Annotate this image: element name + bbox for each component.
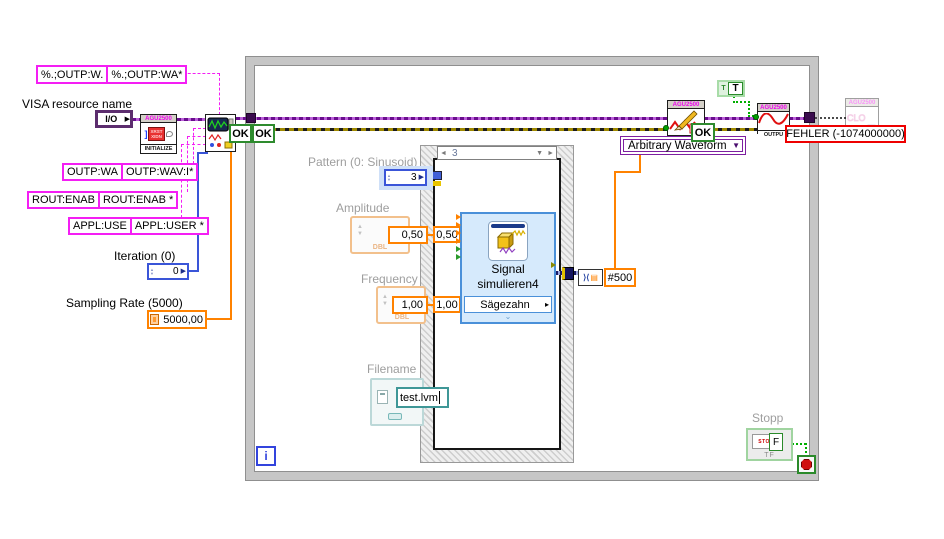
frequency-value[interactable]: 1,00 bbox=[392, 296, 428, 314]
xidn-text: XIDN bbox=[151, 134, 162, 139]
case-prev-icon[interactable]: ◄ bbox=[440, 150, 447, 157]
string-constant[interactable]: APPL:USE bbox=[70, 219, 130, 233]
string-constant[interactable]: %.;OUTP:WA* bbox=[106, 67, 185, 82]
case-dropdown-icon[interactable]: ▼ bbox=[536, 150, 543, 157]
increment-decrement-icon: ▲ ▼ bbox=[357, 224, 363, 237]
svg-text:CLO: CLO bbox=[847, 113, 866, 123]
loop-iteration-terminal[interactable]: i bbox=[256, 446, 276, 466]
sine-wave-icon bbox=[758, 113, 789, 125]
pattern-value: 3 bbox=[392, 172, 419, 183]
case-selector[interactable]: ◄ 3 ▼ ► bbox=[437, 146, 557, 160]
collapse-chevron-icon[interactable]: ⌄ bbox=[464, 314, 552, 322]
visa-wire bbox=[704, 117, 758, 120]
speech-bubble-icon bbox=[166, 131, 173, 137]
input-arrow-icon bbox=[456, 246, 461, 252]
io-label: I/O bbox=[98, 114, 125, 124]
string-constant[interactable]: OUTP:WA bbox=[64, 165, 121, 179]
visa-wire bbox=[236, 117, 668, 120]
string-wire bbox=[181, 144, 182, 218]
sampling-rate-value: 5000,00 bbox=[159, 314, 205, 326]
error-wire bbox=[235, 128, 668, 131]
simulate-signal-express-vi[interactable]: Signal simulieren4 Sägezahn ▸ ⌄ bbox=[460, 212, 556, 324]
string-wire bbox=[187, 136, 206, 137]
dbl-chip-icon bbox=[150, 314, 159, 325]
stop-type-tag: TF bbox=[748, 452, 791, 459]
string-constant[interactable]: %.;OUTP:W. bbox=[38, 67, 106, 82]
output-vi-header: AGU2500 bbox=[758, 104, 789, 112]
labview-block-diagram: ◄ 3 ▼ ► bbox=[0, 0, 944, 539]
string-wire bbox=[181, 144, 206, 145]
amplitude-type-tag: DBL bbox=[360, 244, 400, 251]
reset-id-icon: XRST XIDN bbox=[148, 127, 164, 141]
visa-io-control[interactable]: I/O ▶ bbox=[95, 110, 133, 128]
input-arrow-icon bbox=[456, 254, 461, 260]
true-constant[interactable]: T T bbox=[717, 80, 745, 97]
scpi-string-pair-4[interactable]: APPL:USE APPL:USER * bbox=[68, 217, 209, 235]
write-vi-header: AGU2500 bbox=[668, 101, 704, 109]
output-arrow-icon bbox=[551, 262, 556, 268]
visa-wire bbox=[177, 118, 206, 121]
text-caret bbox=[439, 391, 440, 404]
waveform-type-value: Arbitrary Waveform bbox=[621, 140, 732, 152]
waveform-array-wire bbox=[639, 155, 641, 172]
input-arrow-icon bbox=[456, 214, 461, 220]
string-constant[interactable]: ROUT:ENAB bbox=[29, 193, 98, 207]
error-out-wire bbox=[815, 117, 846, 119]
iteration-value: 0 bbox=[155, 266, 181, 277]
scpi-string-pair-1[interactable]: %.;OUTP:W. %.;OUTP:WA* bbox=[36, 65, 187, 84]
sampling-rate-constant[interactable]: 5000,00 bbox=[147, 310, 207, 329]
iteration-output-arrow-icon: ▶ bbox=[181, 268, 186, 275]
filename-label: Filename bbox=[367, 362, 416, 376]
stop-label: Stopp bbox=[752, 411, 783, 425]
visa-resource-label: VISA resource name bbox=[22, 97, 132, 111]
filename-value-box[interactable]: test.lvm bbox=[396, 387, 449, 408]
increment-decrement-icon: ▲ ▼ bbox=[382, 294, 388, 307]
case-selector-tunnel bbox=[432, 171, 442, 180]
file-lines-icon bbox=[380, 393, 385, 395]
loop-tunnel-left bbox=[246, 113, 256, 123]
signal-type-value: Sägezahn bbox=[465, 299, 545, 311]
input-arrow-icon bbox=[456, 238, 461, 244]
ok-indicator-1[interactable]: OK bbox=[229, 124, 252, 143]
sampling-wire bbox=[207, 318, 232, 320]
true-constant-value: T bbox=[728, 82, 743, 95]
amplitude-label: Amplitude bbox=[336, 201, 389, 215]
frequency-label: Frequency bbox=[361, 272, 418, 286]
boolean-input-dot bbox=[663, 125, 669, 131]
ok-indicator-3[interactable]: OK bbox=[691, 123, 715, 142]
iteration-control[interactable]: ▲▼ 0 ▶ bbox=[147, 263, 189, 280]
bracket-icon: ] bbox=[144, 129, 147, 139]
pattern-output-arrow-icon: ▶ bbox=[419, 174, 424, 181]
increment-decrement-icon[interactable]: ▲▼ bbox=[150, 268, 154, 276]
case-selector-value[interactable]: 3 bbox=[452, 148, 458, 159]
true-chip-icon: T bbox=[719, 82, 728, 95]
convert-dynamic-data-node[interactable]: ⟩⟨ ▤ bbox=[578, 269, 603, 286]
frequency-tunnel-value: 1,00 bbox=[433, 296, 461, 313]
sampling-rate-label: Sampling Rate (5000) bbox=[66, 296, 183, 310]
frequency-type-tag: DBL bbox=[382, 314, 422, 321]
case-next-icon[interactable]: ► bbox=[547, 150, 554, 157]
filename-value: test.lvm bbox=[400, 392, 438, 404]
simulate-signal-icon bbox=[488, 221, 528, 261]
input-arrow-icon bbox=[456, 222, 461, 228]
bracket-glyph-icon: ⟩⟨ bbox=[583, 273, 589, 282]
stop-sign-icon bbox=[801, 459, 812, 470]
scpi-string-pair-2[interactable]: OUTP:WA OUTP:WAV:I* bbox=[62, 163, 198, 181]
loop-condition-terminal[interactable] bbox=[797, 455, 816, 474]
boolean-input-dot bbox=[753, 114, 759, 120]
increment-decrement-icon[interactable]: ▲▼ bbox=[387, 174, 391, 182]
ok-indicator-2[interactable]: OK bbox=[252, 124, 275, 143]
close-vi-header: AGU2500 bbox=[846, 99, 878, 107]
loop-tunnel-right bbox=[804, 112, 815, 123]
express-vi-name-line1: Signal bbox=[462, 262, 554, 276]
initialize-vi-header: AGU2500 bbox=[141, 115, 176, 123]
string-constant[interactable]: APPL:USER * bbox=[130, 219, 207, 233]
case-output-tunnel bbox=[562, 267, 574, 280]
io-output-arrow-icon: ▶ bbox=[125, 116, 130, 123]
string-wire bbox=[193, 128, 194, 164]
string-constant[interactable]: OUTP:WAV:I* bbox=[121, 165, 196, 179]
stop-wire bbox=[792, 443, 806, 445]
express-vi-name-line2: simulieren4 bbox=[462, 277, 554, 291]
string-wire bbox=[219, 73, 220, 115]
samples-wire-label: #500 bbox=[604, 268, 636, 287]
error-code-label: FEHLER (-1074000000) bbox=[785, 125, 906, 143]
ring-dropdown-icon[interactable]: ▼ bbox=[732, 141, 745, 150]
pattern-control[interactable]: ▲▼ 3 ▶ bbox=[384, 169, 427, 186]
waveform-array-wire bbox=[614, 172, 616, 270]
initialize-vi[interactable]: AGU2500 ] XRST XIDN INITIALIZE bbox=[140, 114, 177, 154]
key-icon bbox=[388, 413, 402, 420]
scpi-string-pair-3[interactable]: ROUT:ENAB ROUT:ENAB * bbox=[27, 191, 178, 209]
input-arrow-icon bbox=[456, 230, 461, 236]
signal-type-dropdown[interactable]: Sägezahn ▸ bbox=[464, 296, 552, 313]
stop-wire-value-label: F bbox=[769, 433, 783, 451]
string-constant[interactable]: ROUT:ENAB * bbox=[98, 193, 176, 207]
waveform-array-wire bbox=[614, 171, 641, 173]
submenu-arrow-icon: ▸ bbox=[545, 300, 549, 309]
sampling-wire bbox=[230, 152, 232, 320]
case-selector-tunnel-glow bbox=[433, 181, 441, 186]
initialize-vi-footer: INITIALIZE bbox=[141, 144, 176, 153]
amplitude-value[interactable]: 0,50 bbox=[388, 226, 428, 244]
initialize-vi-icon: ] XRST XIDN bbox=[141, 123, 176, 144]
array-glyph-icon: ▤ bbox=[590, 273, 598, 282]
iteration-label: Iteration (0) bbox=[114, 249, 175, 263]
